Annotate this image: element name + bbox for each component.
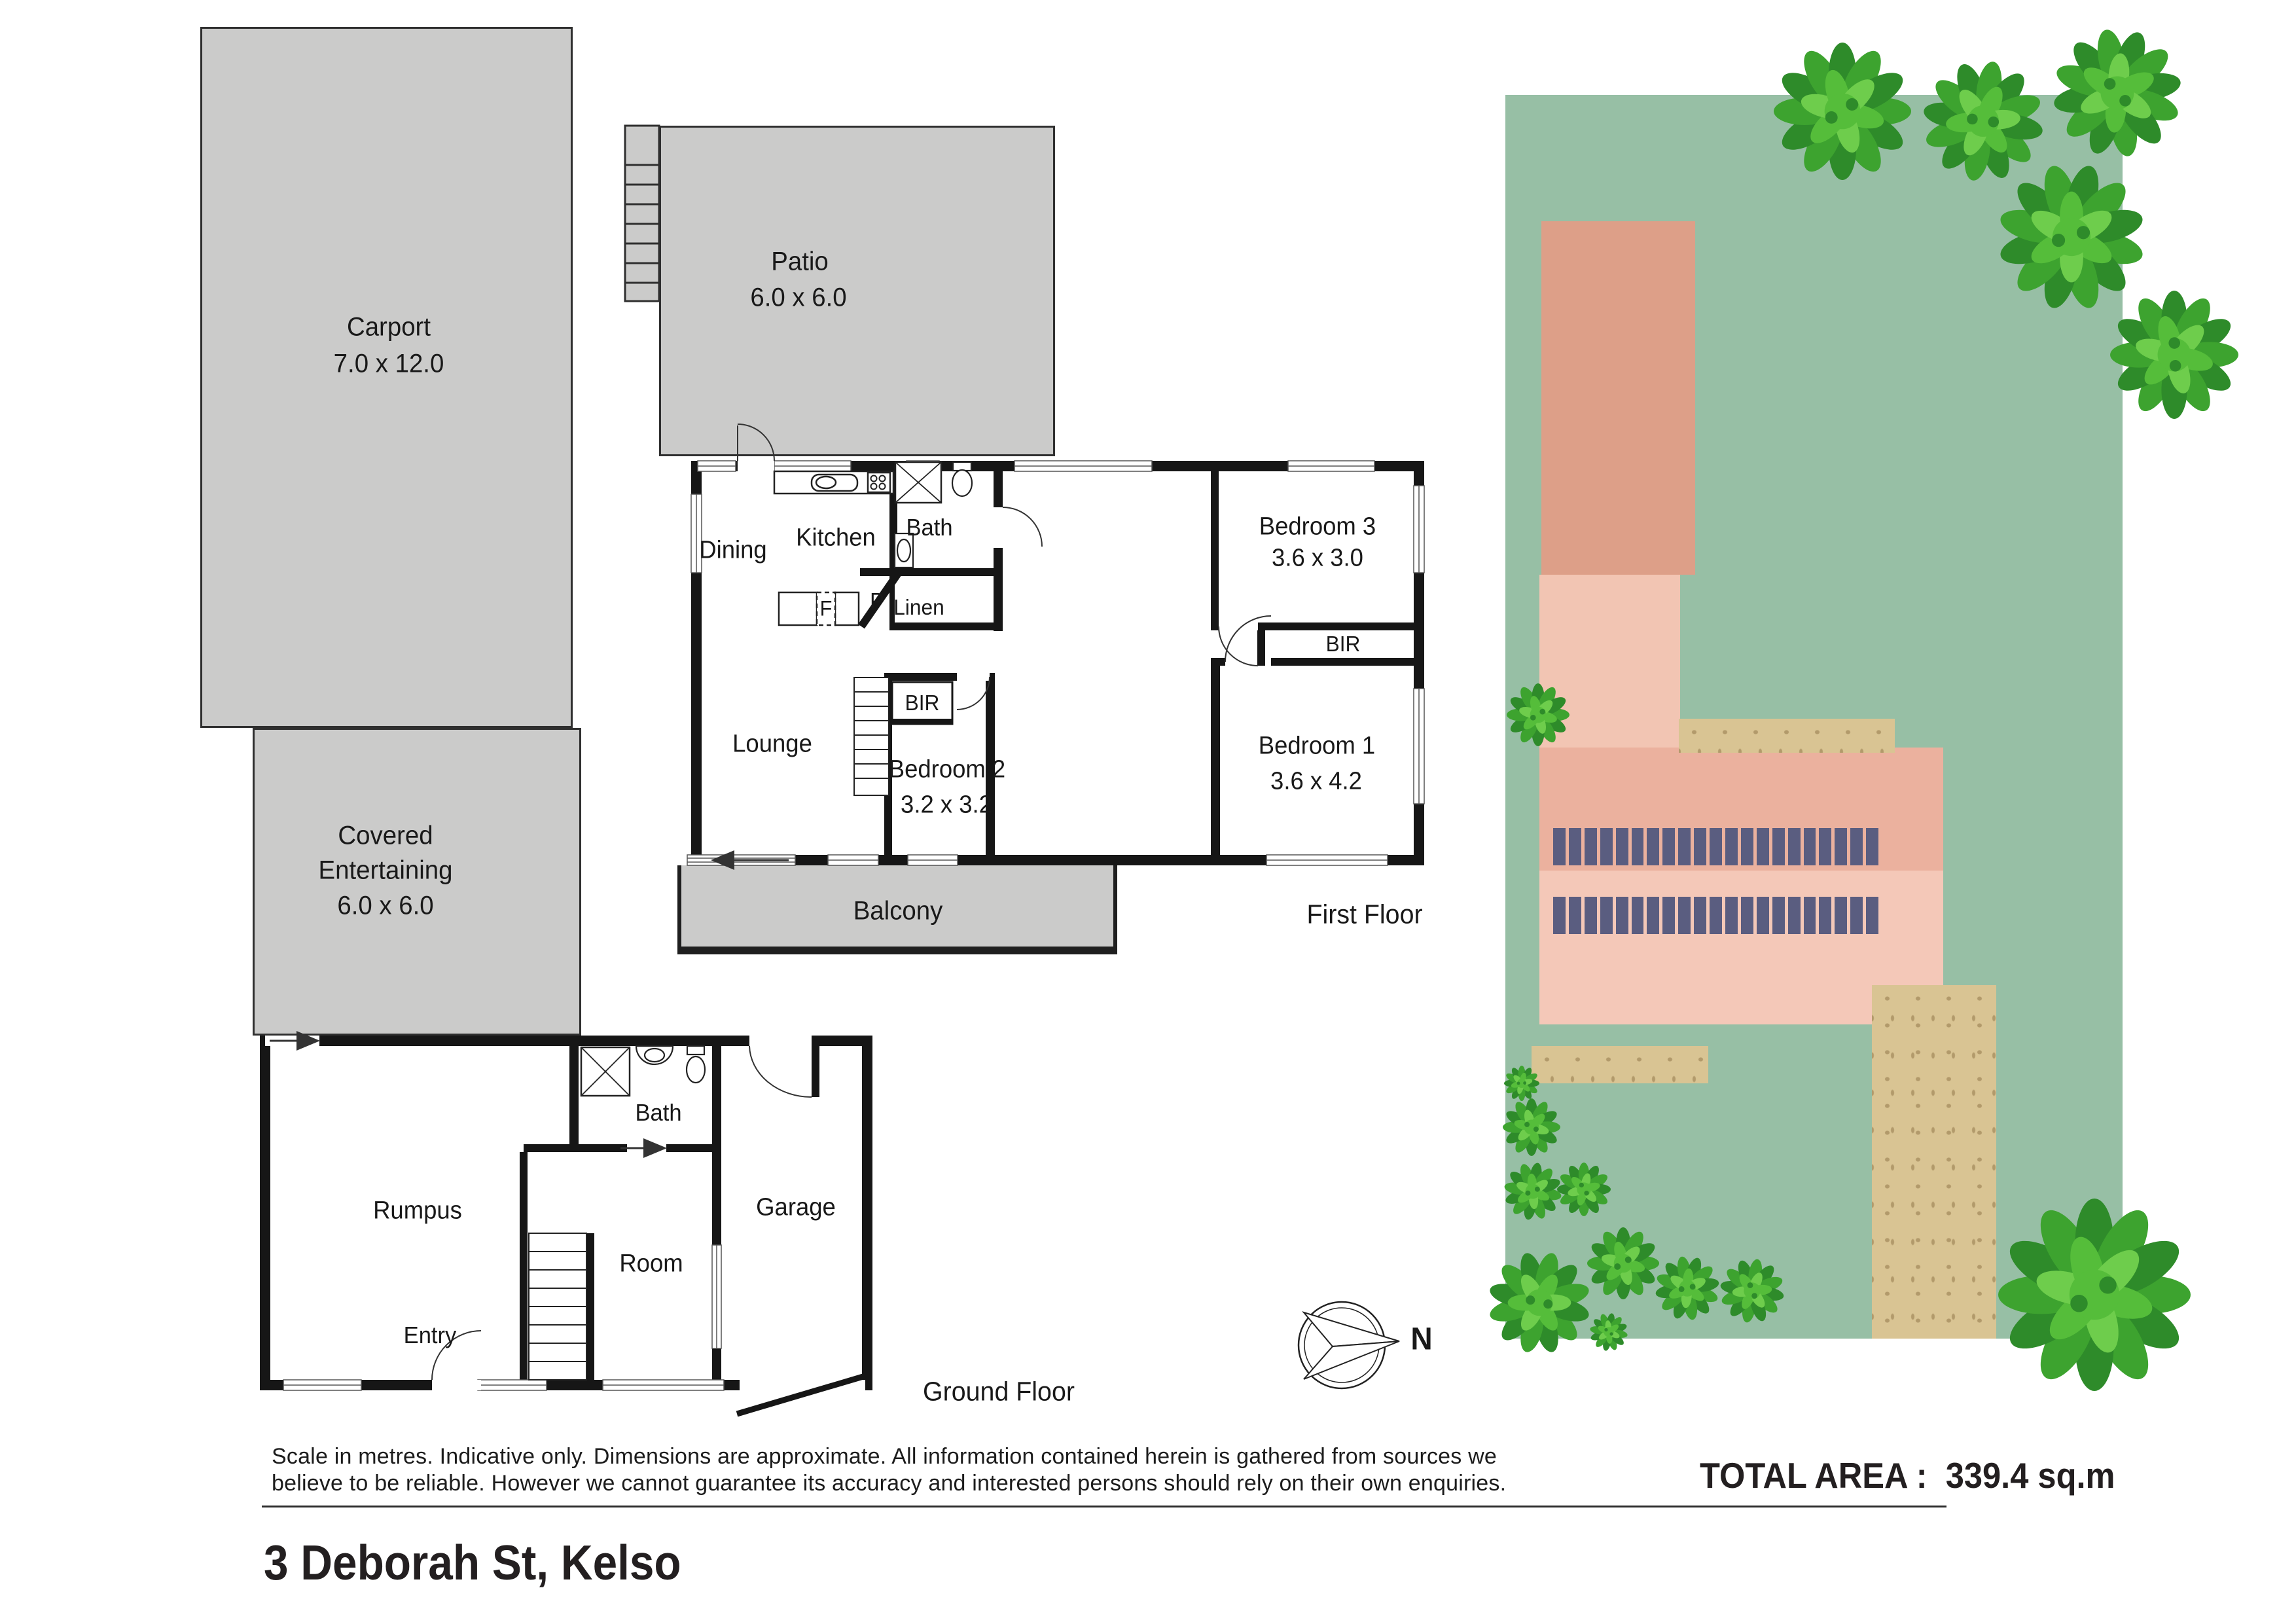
site-trees	[0, 0, 2296, 1624]
tree-icon	[1898, 36, 2068, 206]
tree-icon	[1492, 1088, 1571, 1166]
floorplan-canvas: Carport7.0 x 12.0Patio6.0 x 6.0CoveredEn…	[0, 0, 2296, 1624]
room-label-bir: BIR	[905, 691, 940, 715]
room-label-bath: Bath	[906, 514, 952, 541]
room-label-3-2-x-3-2: 3.2 x 3.2	[901, 791, 992, 820]
tree-icon	[1998, 1199, 2191, 1391]
page-title: 3 Deborah St, Kelso	[264, 1534, 681, 1591]
total-area-label: TOTAL AREA :	[1700, 1455, 1928, 1496]
floor-caption-first-floor: First Floor	[1306, 899, 1422, 930]
tree-icon	[1507, 683, 1570, 746]
tree-icon	[1982, 147, 2161, 327]
room-label-bath: Bath	[635, 1099, 681, 1127]
room-label-entry: Entry	[404, 1322, 457, 1349]
room-label-bedroom-3: Bedroom 3	[1259, 513, 1376, 541]
area-label-carport: Carport	[347, 313, 431, 342]
tree-icon	[1774, 43, 1911, 180]
tree-icon	[1646, 1247, 1729, 1329]
room-label-kitchen: Kitchen	[796, 524, 876, 552]
room-label-f: F	[820, 597, 833, 621]
room-label-bedroom-2: Bedroom 2	[889, 756, 1005, 784]
room-label-bir: BIR	[1326, 632, 1361, 657]
tree-icon	[1585, 1308, 1633, 1356]
room-label-3-6-x-4-2: 3.6 x 4.2	[1270, 768, 1362, 796]
area-label-7-0-x-12-0: 7.0 x 12.0	[334, 350, 444, 379]
room-label-room: Room	[619, 1250, 683, 1278]
total-area-value: 339.4 sq.m	[1946, 1455, 2115, 1496]
disclaimer-line1: Scale in metres. Indicative only. Dimens…	[272, 1444, 1497, 1470]
tree-icon	[1467, 1231, 1612, 1375]
room-label-p: P	[870, 589, 884, 615]
area-label-6-0-x-6-0: 6.0 x 6.0	[750, 283, 846, 313]
room-label-rumpus: Rumpus	[373, 1197, 462, 1225]
compass-north-label: N	[1410, 1322, 1432, 1358]
tree-icon	[1498, 1059, 1546, 1108]
room-label-lounge: Lounge	[732, 731, 812, 759]
area-label-patio: Patio	[771, 247, 829, 277]
tree-icon	[2087, 267, 2262, 442]
room-label-linen: Linen	[893, 595, 944, 620]
room-label-bedroom-1: Bedroom 1	[1259, 732, 1375, 761]
tree-icon	[1499, 1158, 1566, 1225]
room-label-dining: Dining	[699, 537, 766, 565]
footer-divider	[262, 1506, 1946, 1507]
floor-caption-ground-floor: Ground Floor	[923, 1377, 1075, 1407]
tree-icon	[1557, 1163, 1611, 1216]
tree-icon	[1715, 1254, 1789, 1328]
area-label-6-0-x-6-0: 6.0 x 6.0	[337, 892, 433, 921]
tree-icon	[2043, 18, 2191, 167]
disclaimer-line2: believe to be reliable. However we canno…	[272, 1471, 1506, 1496]
area-label-entertaining: Entertaining	[319, 856, 453, 886]
area-label-balcony: Balcony	[853, 897, 943, 926]
room-label-3-6-x-3-0: 3.6 x 3.0	[1272, 545, 1363, 573]
room-label-garage: Garage	[756, 1194, 836, 1222]
total-area: TOTAL AREA : 339.4 sq.m	[1700, 1454, 2115, 1496]
tree-icon	[1587, 1227, 1659, 1299]
area-label-covered: Covered	[338, 821, 433, 851]
